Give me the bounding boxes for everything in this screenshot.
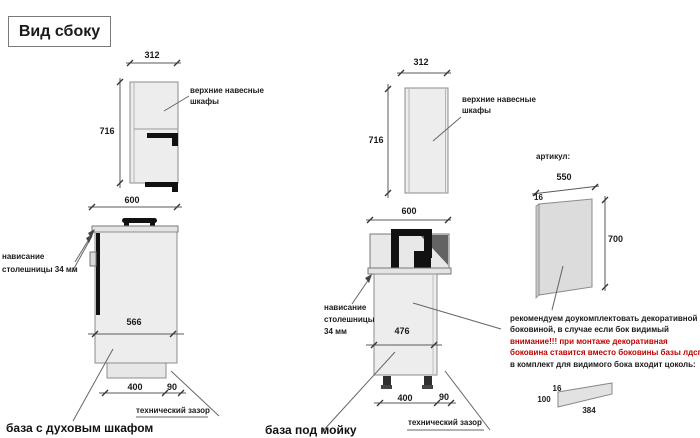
- note-warning-1: внимание!!! при монтаже декоративная: [510, 336, 668, 348]
- label-upper-cabinets-left-line2: шкафы: [190, 98, 219, 106]
- decorative-side-panel: [536, 199, 592, 298]
- label-overhang-middle-line3: 34 мм: [324, 328, 347, 336]
- dim-panel-width: 550: [550, 173, 578, 182]
- dim-niche-middle-base: 476: [388, 327, 416, 336]
- middle-base-cabinet: [368, 229, 451, 389]
- dim-plinth-left-base: 400: [121, 383, 149, 392]
- dim-plinth-length: 384: [577, 407, 601, 415]
- label-technical-gap-middle: технический зазор: [408, 419, 482, 427]
- dim-width-left-base: 600: [118, 196, 146, 205]
- cabinet-leg: [424, 376, 432, 386]
- dim-width-middle-upper: 312: [407, 58, 435, 67]
- drawing-linework: [0, 0, 700, 438]
- overhang-arrowhead-middle: [365, 274, 372, 283]
- dim-plinth-middle-base: 400: [391, 394, 419, 403]
- label-overhang-middle-line1: нависание: [324, 304, 366, 312]
- plinth-strip: [558, 383, 612, 407]
- dim-gap-left-base: 90: [163, 383, 181, 392]
- label-upper-cabinets-middle-line1: верхние навесные: [462, 96, 536, 104]
- dim-gap-middle-base: 90: [435, 393, 453, 402]
- dim-plinth-thickness: 16: [549, 385, 565, 393]
- left-upper-cabinet: [130, 82, 178, 192]
- left-base-cabinet: [90, 218, 178, 378]
- dim-plinth-height: 100: [534, 396, 554, 404]
- dim-height-middle-upper: 716: [366, 136, 386, 145]
- note-warning-2: боковина ставится вместо боковины базы л…: [510, 347, 700, 359]
- label-upper-cabinets-left-line1: верхние навесные: [190, 87, 264, 95]
- dim-height-left-upper: 716: [96, 127, 118, 136]
- dim-niche-left-base: 566: [120, 318, 148, 327]
- label-article-heading: артикул:: [536, 153, 570, 161]
- note-line-3: в комплект для видимого бока входит цоко…: [510, 359, 696, 371]
- cabinet-leg: [383, 376, 391, 386]
- dim-panel-height: 700: [608, 235, 623, 244]
- dim-width-left-upper: 312: [138, 51, 166, 60]
- label-overhang-left-line1: нависание: [2, 253, 44, 261]
- page-title: Вид сбоку: [8, 16, 111, 47]
- side-view-drawing: Вид сбоку 312 716 верхние навесные шкафы…: [0, 0, 700, 438]
- label-technical-gap-left: технический зазор: [136, 407, 210, 415]
- label-overhang-left-line2: столешницы 34 мм: [2, 266, 78, 274]
- caption-oven-base: база с духовым шкафом: [6, 422, 153, 435]
- dim-width-middle-base: 600: [395, 207, 423, 216]
- caption-sink-base: база под мойку: [265, 424, 357, 437]
- label-upper-cabinets-middle-line2: шкафы: [462, 107, 491, 115]
- note-line-2: боковиной, в случае если бок видимый: [510, 324, 669, 336]
- dim-panel-thickness: 16: [534, 194, 543, 202]
- middle-upper-cabinet: [405, 88, 448, 193]
- label-overhang-middle-line2: столешницы: [324, 316, 375, 324]
- note-line-1: рекомендуем доукомплектовать декоративно…: [510, 313, 697, 325]
